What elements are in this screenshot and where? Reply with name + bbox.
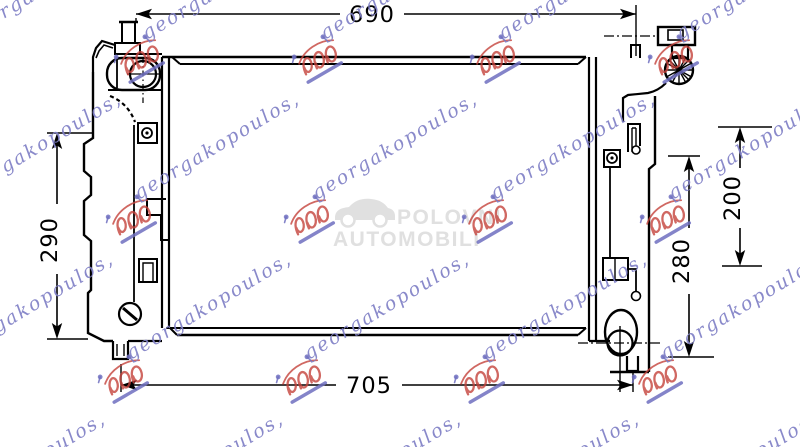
georgakopoulos-stamp-icon (636, 192, 692, 245)
dimension-280-label: 280 (669, 238, 695, 284)
watermark-text: georgakopoulos, (114, 408, 288, 447)
watermark-text: georgakopoulos, (138, 0, 312, 44)
watermark-unit: georgakopoulos, (447, 88, 677, 256)
watermark-text: georgakopoulos, (308, 88, 482, 204)
side-clip-left (147, 199, 169, 240)
filler-neck (122, 22, 135, 43)
watermark-unit: georgakopoulos, (0, 248, 135, 416)
watermark-unit: georgakopoulos, (0, 408, 127, 447)
watermark-text: georgakopoulos, (0, 408, 110, 447)
watermark-text: georgakopoulos, (130, 88, 304, 204)
car-silhouette-icon (335, 199, 395, 227)
dimension-705-label: 705 (346, 373, 392, 399)
watermark-unit: georgakopoulos, (75, 408, 305, 447)
watermark-text: georgakopoulos, (470, 408, 644, 447)
watermark-unit: georgakopoulos, (0, 0, 151, 96)
watermark-unit: georgakopoulos, (253, 408, 483, 447)
watermark-text: georgakopoulos, (292, 408, 466, 447)
watermark-text: georgakopoulos, (316, 0, 490, 44)
watermark-unit: georgakopoulos, (431, 408, 661, 447)
georgakopoulos-stamp-icon (272, 352, 328, 405)
watermark-text: georgakopoulos, (672, 0, 800, 44)
watermark-text: georgakopoulos, (494, 0, 668, 44)
watermark-unit: georgakopoulos, (633, 0, 800, 96)
drawing-canvas: POLOVNI AUTOMOBILI (0, 0, 800, 447)
watermark-unit: georgakopoulos, (625, 88, 800, 256)
georgakopoulos-stamp-icon (450, 352, 506, 405)
watermark-text: georgakopoulos, (0, 88, 126, 204)
watermark-unit: georgakopoulos, (83, 248, 313, 416)
watermark-text: georgakopoulos, (0, 248, 118, 364)
georgakopoulos-stamp-icon (628, 352, 684, 405)
dimension-width-bottom: 705 (121, 364, 633, 399)
watermark-unit: georgakopoulos, (439, 248, 669, 416)
watermark-text: georgakopoulos, (478, 248, 652, 364)
georgakopoulos-stamp-icon (280, 192, 336, 245)
center-watermark-line2: AUTOMOBILI (333, 228, 481, 251)
watermark-text: georgakopoulos, (0, 0, 134, 44)
watermark-text: georgakopoulos, (300, 248, 474, 364)
dimension-290-label: 290 (37, 217, 63, 263)
center-watermark: POLOVNI AUTOMOBILI (333, 199, 502, 251)
dimension-200-label: 200 (720, 175, 746, 221)
watermark-text: georgakopoulos, (122, 248, 296, 364)
watermark-unit: georgakopoulos, (617, 248, 800, 416)
radiator-technical-drawing: POLOVNI AUTOMOBILI (0, 0, 800, 447)
watermark-text: georgakopoulos, (648, 408, 800, 447)
watermark-unit: georgakopoulos, (91, 88, 321, 256)
